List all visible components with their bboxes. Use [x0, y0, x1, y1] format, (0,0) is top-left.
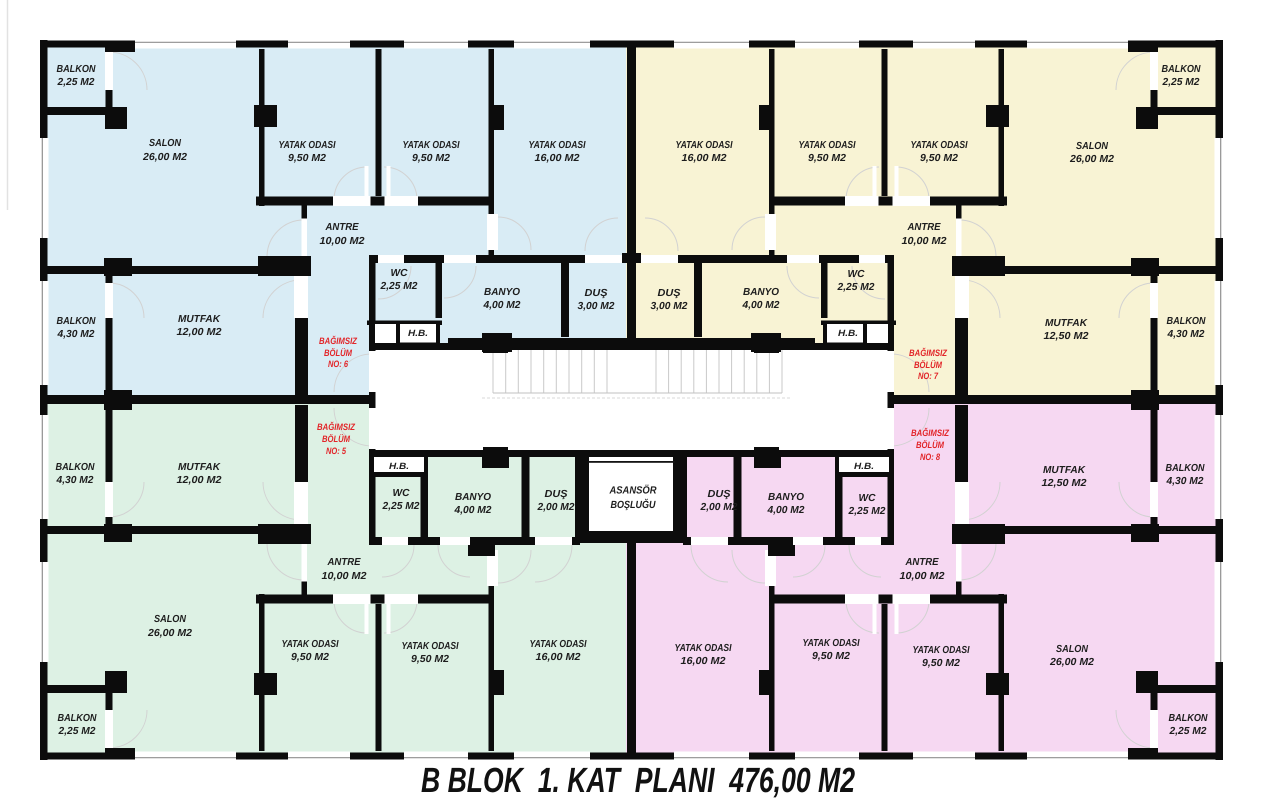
svg-text:4,30 M2: 4,30 M2: [56, 329, 94, 340]
svg-text:3,00 M2: 3,00 M2: [578, 301, 615, 312]
svg-text:12,00 M2: 12,00 M2: [177, 475, 222, 486]
svg-text:9,50 M2: 9,50 M2: [812, 651, 850, 662]
svg-text:10,00 M2: 10,00 M2: [900, 571, 945, 582]
svg-text:WC: WC: [859, 493, 877, 504]
svg-text:BANYO: BANYO: [768, 492, 804, 503]
svg-text:16,00 M2: 16,00 M2: [681, 656, 726, 667]
svg-text:BALKON: BALKON: [1167, 316, 1207, 327]
svg-text:BAĞIMSIZ: BAĞIMSIZ: [317, 421, 355, 432]
svg-text:4,00 M2: 4,00 M2: [766, 505, 804, 516]
svg-text:2,00 M2: 2,00 M2: [536, 502, 574, 513]
svg-text:MUTFAK: MUTFAK: [1043, 465, 1086, 476]
svg-text:ANTRE: ANTRE: [905, 557, 940, 568]
svg-text:16,00 M2: 16,00 M2: [536, 652, 581, 663]
svg-text:9,50 M2: 9,50 M2: [412, 153, 450, 164]
svg-text:9,50 M2: 9,50 M2: [291, 652, 329, 663]
svg-text:YATAK ODASI: YATAK ODASI: [402, 641, 459, 652]
svg-text:BALKON: BALKON: [57, 64, 97, 75]
svg-text:YATAK ODASI: YATAK ODASI: [530, 639, 587, 650]
svg-text:2,25 M2: 2,25 M2: [1168, 726, 1206, 737]
svg-text:ANTRE: ANTRE: [907, 222, 942, 233]
svg-text:3,00 M2: 3,00 M2: [651, 301, 688, 312]
svg-text:DUŞ: DUŞ: [545, 489, 568, 500]
svg-text:MUTFAK: MUTFAK: [1045, 318, 1088, 329]
svg-text:2,25 M2: 2,25 M2: [379, 281, 417, 292]
svg-text:H.B.: H.B.: [389, 461, 409, 471]
svg-text:2,25 M2: 2,25 M2: [381, 501, 419, 512]
svg-text:BALKON: BALKON: [1169, 713, 1209, 724]
svg-text:DUŞ: DUŞ: [585, 288, 608, 299]
svg-text:YATAK ODASI: YATAK ODASI: [529, 140, 586, 151]
svg-text:YATAK ODASI: YATAK ODASI: [913, 645, 970, 656]
svg-text:9,50 M2: 9,50 M2: [920, 153, 958, 164]
svg-text:YATAK ODASI: YATAK ODASI: [279, 140, 336, 151]
svg-text:H.B.: H.B.: [408, 328, 428, 338]
svg-text:MUTFAK: MUTFAK: [178, 462, 221, 473]
svg-text:BALKON: BALKON: [57, 316, 97, 327]
svg-text:BALKON: BALKON: [1162, 64, 1202, 75]
svg-text:2,25 M2: 2,25 M2: [1161, 77, 1199, 88]
svg-text:16,00 M2: 16,00 M2: [535, 153, 580, 164]
svg-text:26,00 M2: 26,00 M2: [1069, 154, 1114, 165]
svg-text:12,50 M2: 12,50 M2: [1042, 478, 1087, 489]
svg-text:WC: WC: [393, 488, 411, 499]
svg-text:4,30 M2: 4,30 M2: [55, 475, 93, 486]
svg-text:YATAK ODASI: YATAK ODASI: [675, 643, 732, 654]
svg-text:2,00 M2: 2,00 M2: [699, 502, 737, 513]
svg-text:SALON: SALON: [154, 614, 187, 625]
svg-text:BAĞIMSIZ: BAĞIMSIZ: [319, 335, 357, 346]
svg-text:12,00 M2: 12,00 M2: [177, 327, 222, 338]
svg-text:NO: 6: NO: 6: [328, 359, 349, 369]
svg-text:2,25 M2: 2,25 M2: [836, 282, 874, 293]
svg-text:WC: WC: [848, 269, 866, 280]
svg-text:YATAK ODASI: YATAK ODASI: [676, 140, 733, 151]
svg-text:SALON: SALON: [1056, 644, 1089, 655]
svg-text:DUŞ: DUŞ: [658, 288, 681, 299]
svg-text:10,00 M2: 10,00 M2: [322, 571, 367, 582]
svg-text:YATAK ODASI: YATAK ODASI: [803, 638, 860, 649]
svg-text:9,50 M2: 9,50 M2: [922, 658, 960, 669]
svg-text:BALKON: BALKON: [56, 462, 96, 473]
svg-text:26,00 M2: 26,00 M2: [147, 628, 192, 639]
svg-text:YATAK ODASI: YATAK ODASI: [403, 140, 460, 151]
svg-text:4,30 M2: 4,30 M2: [1165, 476, 1203, 487]
svg-text:YATAK ODASI: YATAK ODASI: [799, 140, 856, 151]
svg-text:BALKON: BALKON: [1166, 463, 1206, 474]
svg-text:H.B.: H.B.: [854, 461, 874, 471]
svg-text:BÖLÜM: BÖLÜM: [914, 360, 942, 370]
svg-text:10,00 M2: 10,00 M2: [320, 236, 365, 247]
svg-text:4,30 M2: 4,30 M2: [1166, 329, 1204, 340]
svg-text:MUTFAK: MUTFAK: [178, 314, 221, 325]
svg-text:BÖLÜM: BÖLÜM: [324, 348, 352, 358]
svg-text:4,00 M2: 4,00 M2: [741, 300, 779, 311]
svg-text:DUŞ: DUŞ: [708, 489, 731, 500]
svg-text:SALON: SALON: [149, 138, 182, 149]
svg-text:9,50 M2: 9,50 M2: [411, 654, 449, 665]
svg-text:BANYO: BANYO: [743, 287, 779, 298]
svg-text:10,00 M2: 10,00 M2: [902, 236, 947, 247]
svg-text:26,00 M2: 26,00 M2: [1049, 657, 1094, 668]
svg-text:BOŞLUĞU: BOŞLUĞU: [611, 498, 656, 511]
svg-text:BÖLÜM: BÖLÜM: [916, 440, 944, 450]
svg-text:BANYO: BANYO: [484, 287, 520, 298]
svg-text:12,50 M2: 12,50 M2: [1044, 331, 1089, 342]
svg-text:BAĞIMSIZ: BAĞIMSIZ: [909, 347, 947, 358]
svg-text:4,00 M2: 4,00 M2: [453, 505, 491, 516]
svg-text:BÖLÜM: BÖLÜM: [322, 434, 350, 444]
svg-text:2,25 M2: 2,25 M2: [56, 77, 94, 88]
svg-text:2,25 M2: 2,25 M2: [847, 506, 885, 517]
svg-text:NO: 7: NO: 7: [918, 371, 939, 381]
svg-text:ANTRE: ANTRE: [325, 222, 360, 233]
svg-text:BALKON: BALKON: [58, 713, 98, 724]
svg-text:ASANSÖR: ASANSÖR: [609, 485, 657, 497]
svg-text:B BLOK 1. KAT PLANI 476,00: B BLOK 1. KAT PLANI 476,00 M2: [421, 761, 855, 800]
svg-text:ANTRE: ANTRE: [327, 557, 362, 568]
svg-text:SALON: SALON: [1076, 141, 1109, 152]
svg-text:YATAK ODASI: YATAK ODASI: [282, 639, 339, 650]
svg-text:2,25 M2: 2,25 M2: [57, 726, 95, 737]
svg-text:26,00 M2: 26,00 M2: [142, 152, 187, 163]
svg-text:BANYO: BANYO: [455, 492, 491, 503]
svg-text:NO: 5: NO: 5: [326, 446, 347, 456]
svg-text:WC: WC: [391, 268, 409, 279]
svg-text:4,00 M2: 4,00 M2: [482, 300, 520, 311]
svg-text:NO: 8: NO: 8: [920, 452, 941, 462]
svg-text:16,00 M2: 16,00 M2: [682, 153, 727, 164]
svg-text:9,50 M2: 9,50 M2: [808, 153, 846, 164]
svg-text:BAĞIMSIZ: BAĞIMSIZ: [911, 427, 949, 438]
svg-text:H.B.: H.B.: [838, 328, 858, 338]
svg-text:YATAK ODASI: YATAK ODASI: [911, 140, 968, 151]
svg-text:9,50 M2: 9,50 M2: [288, 153, 326, 164]
